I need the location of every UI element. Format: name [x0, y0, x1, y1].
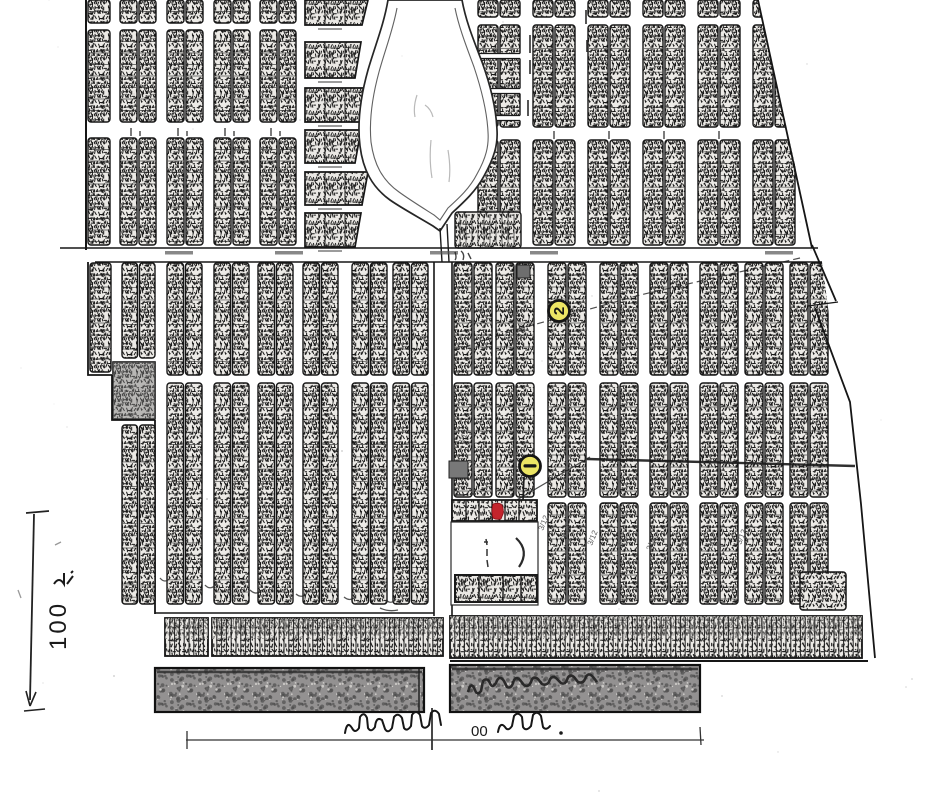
svg-text:00: 00: [471, 723, 488, 740]
svg-text:100: 100: [45, 601, 72, 650]
svg-text:2: 2: [551, 307, 568, 315]
